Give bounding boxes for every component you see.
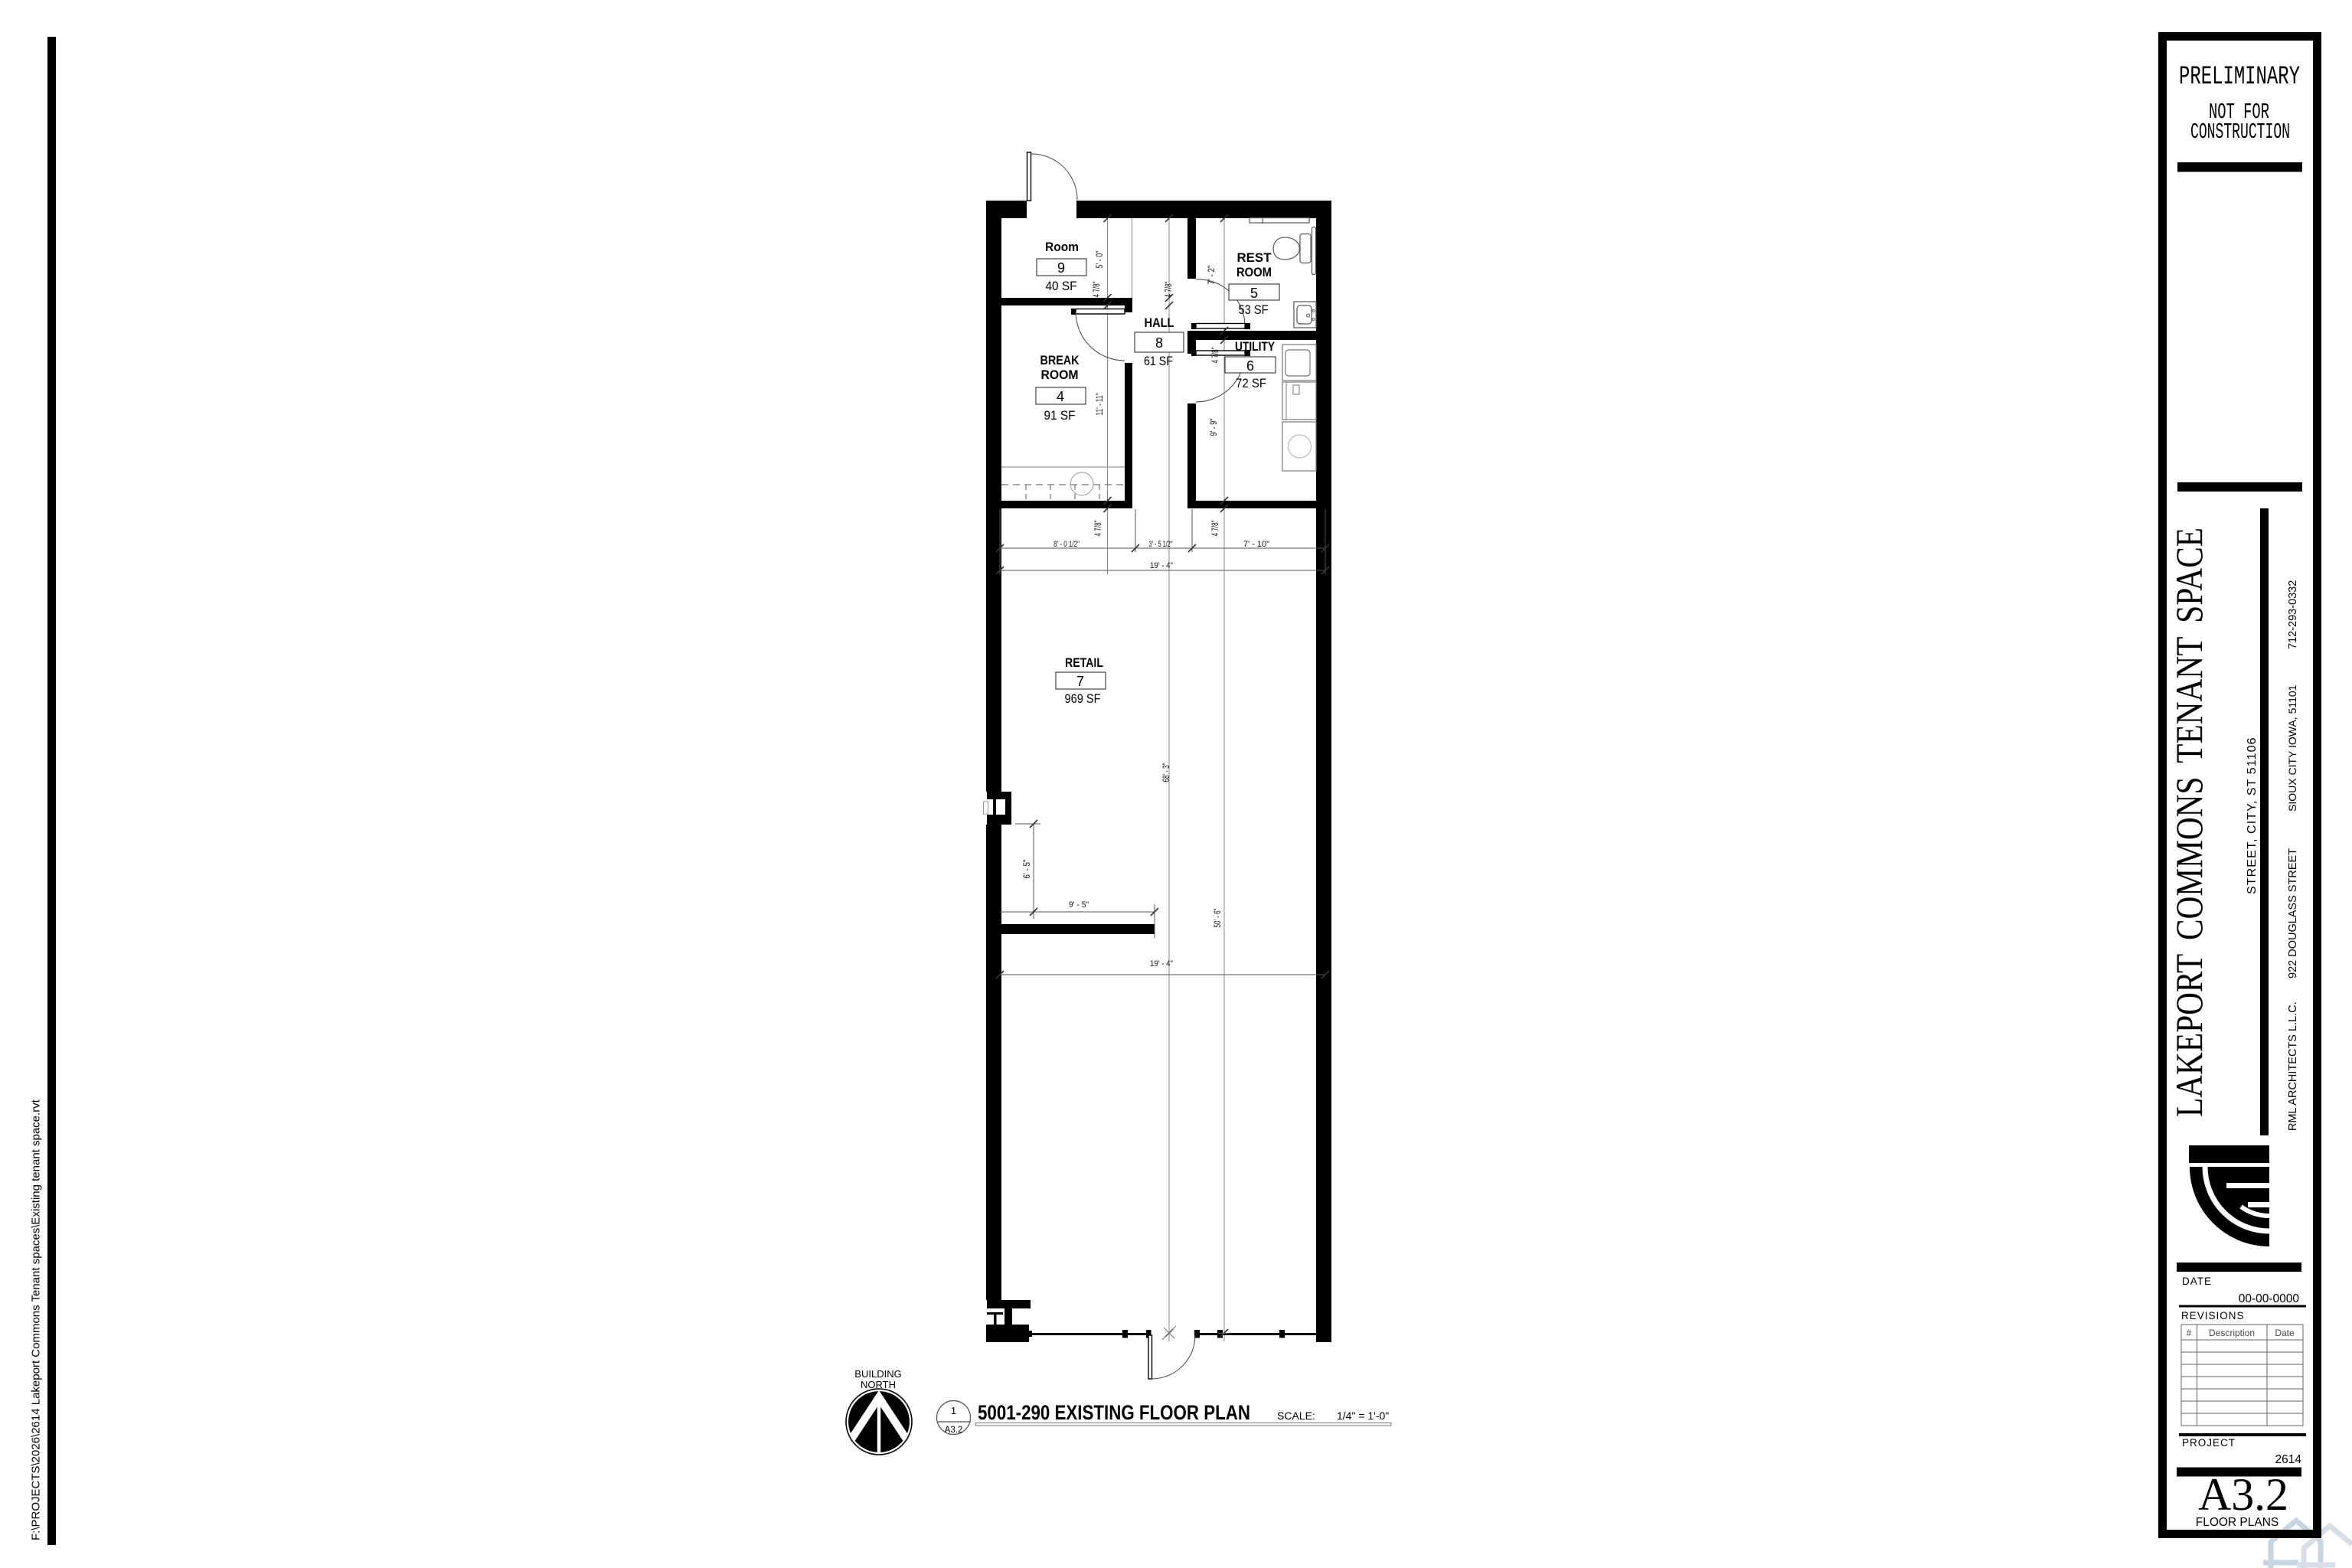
svg-text:CONSTRUCTION: CONSTRUCTION	[2190, 119, 2290, 145]
svg-text:A3.2: A3.2	[2198, 1469, 2288, 1520]
svg-text:REST: REST	[1237, 250, 1272, 265]
svg-text:4 7/8": 4 7/8"	[1211, 521, 1220, 537]
svg-text:19' - 4": 19' - 4"	[1150, 561, 1173, 570]
svg-text:8' - 0 1/2": 8' - 0 1/2"	[1053, 540, 1080, 549]
svg-text:HALL: HALL	[1145, 315, 1174, 330]
svg-text:1: 1	[951, 1405, 956, 1416]
svg-text:FLOOR PLANS: FLOOR PLANS	[2196, 1516, 2279, 1529]
svg-text:4 7/8": 4 7/8"	[1093, 282, 1102, 298]
svg-text:LAKEPORT COMMONS TENANT SPACE: LAKEPORT COMMONS TENANT SPACE	[2167, 528, 2210, 1117]
svg-text:2614: 2614	[2275, 1453, 2302, 1466]
svg-text:4 7/8": 4 7/8"	[1211, 348, 1220, 364]
svg-text:53 SF: 53 SF	[1239, 302, 1269, 317]
svg-text:922 DOUGLASS STREET: 922 DOUGLASS STREET	[2287, 848, 2299, 978]
svg-text:REVISIONS: REVISIONS	[2181, 1310, 2245, 1321]
svg-text:6: 6	[1246, 358, 1254, 374]
svg-text:DATE: DATE	[2182, 1276, 2212, 1287]
svg-text:BREAK: BREAK	[1040, 353, 1080, 367]
svg-text:Description: Description	[2209, 1328, 2255, 1338]
svg-text:40 SF: 40 SF	[1046, 279, 1077, 293]
svg-text:UTILITY: UTILITY	[1235, 339, 1276, 354]
svg-text:72 SF: 72 SF	[1236, 376, 1266, 390]
svg-text:4 7/8": 4 7/8"	[1094, 521, 1103, 537]
svg-text:11' - 11": 11' - 11"	[1096, 394, 1105, 416]
svg-text:68' - 3": 68' - 3"	[1162, 763, 1171, 782]
svg-text:4 7/8": 4 7/8"	[1165, 282, 1174, 298]
svg-text:8: 8	[1155, 335, 1163, 351]
svg-text:#: #	[2187, 1328, 2192, 1338]
svg-text:Room: Room	[1045, 240, 1079, 254]
svg-text:91 SF: 91 SF	[1044, 408, 1076, 423]
svg-text:ROOM: ROOM	[1041, 367, 1079, 382]
svg-text:5: 5	[1250, 286, 1258, 301]
svg-text:7' - 10": 7' - 10"	[1243, 540, 1269, 549]
svg-text:1/4" = 1'-0": 1/4" = 1'-0"	[1337, 1410, 1389, 1422]
svg-text:61 SF: 61 SF	[1144, 354, 1173, 368]
svg-text:ROOM: ROOM	[1236, 265, 1272, 279]
svg-text:RML ARCHITECTS L.L.C.: RML ARCHITECTS L.L.C.	[2287, 1001, 2299, 1131]
svg-text:A3.2: A3.2	[945, 1426, 963, 1435]
svg-text:9' - 5": 9' - 5"	[1069, 900, 1089, 910]
svg-text:6' - 5": 6' - 5"	[1023, 860, 1032, 879]
svg-text:19' - 4": 19' - 4"	[1150, 959, 1173, 969]
svg-text:PROJECT: PROJECT	[2182, 1437, 2236, 1449]
svg-text:5' - 0": 5' - 0"	[1096, 251, 1105, 269]
svg-text:9: 9	[1057, 260, 1065, 276]
svg-text:50' - 6": 50' - 6"	[1214, 909, 1223, 928]
svg-text:RETAIL: RETAIL	[1065, 655, 1103, 670]
svg-text:PRELIMINARY: PRELIMINARY	[2179, 63, 2300, 92]
svg-text:SCALE:: SCALE:	[1277, 1410, 1315, 1422]
svg-text:BUILDING: BUILDING	[854, 1368, 901, 1380]
svg-text:5001-290 EXISTING FLOOR PLAN: 5001-290 EXISTING FLOOR PLAN	[978, 1401, 1250, 1424]
svg-text:STREET, CITY, ST 51106: STREET, CITY, ST 51106	[2246, 737, 2259, 894]
svg-text:F:\PROJECTS\2026\2614 Lakeport: F:\PROJECTS\2026\2614 Lakeport Commons T…	[30, 1099, 43, 1540]
svg-text:7: 7	[1076, 674, 1084, 689]
svg-text:00-00-0000: 00-00-0000	[2239, 1292, 2300, 1305]
svg-text:969 SF: 969 SF	[1065, 691, 1101, 706]
svg-text:SIOUX CITY IOWA, 51101: SIOUX CITY IOWA, 51101	[2286, 684, 2298, 812]
svg-text:9' - 9": 9' - 9"	[1210, 419, 1219, 436]
svg-text:Date: Date	[2275, 1328, 2295, 1338]
svg-text:712-293-0332: 712-293-0332	[2287, 580, 2299, 649]
svg-text:4: 4	[1057, 389, 1064, 404]
svg-text:3' - 5 1/2": 3' - 5 1/2"	[1149, 540, 1173, 549]
svg-text:7' - 2": 7' - 2"	[1207, 266, 1217, 285]
